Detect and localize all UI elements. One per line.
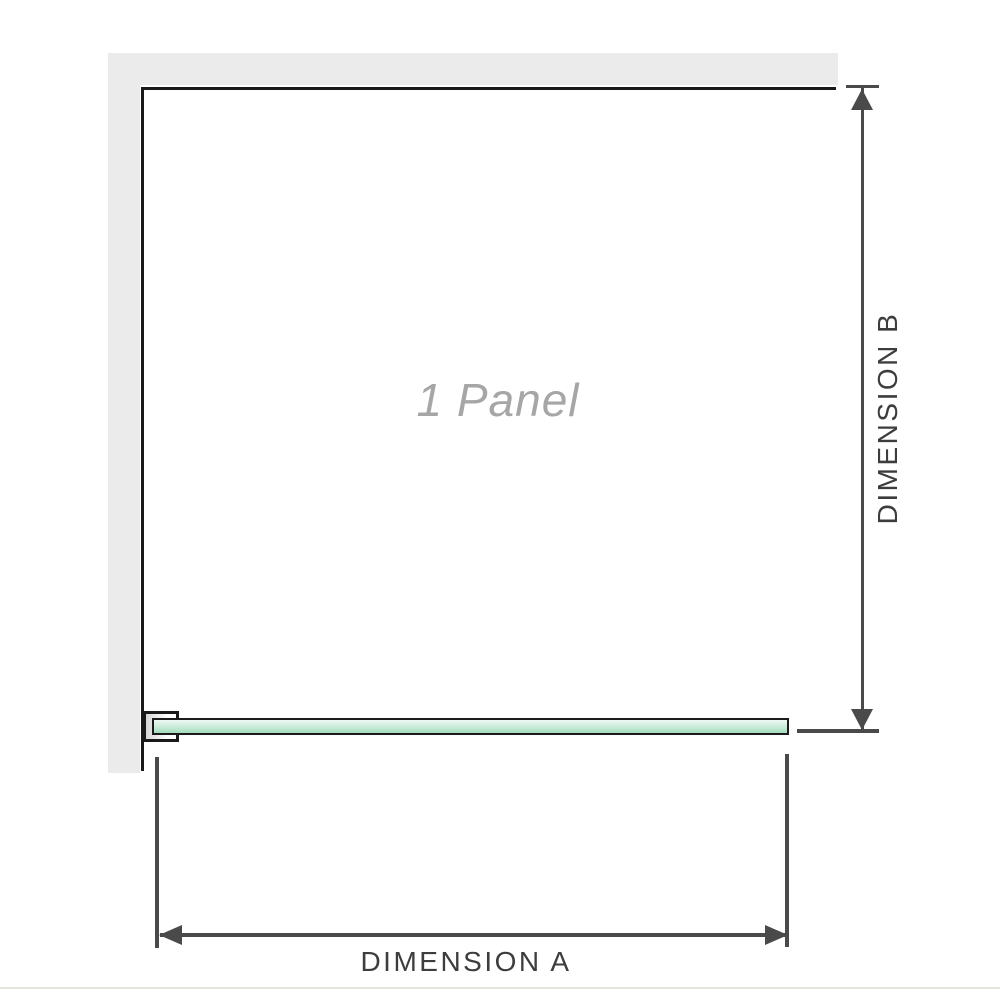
glass-panel-top-view: [152, 718, 789, 735]
bottom-divider: [0, 987, 1000, 989]
dimension-b-line: [861, 88, 864, 730]
dimension-a-label: DIMENSION A: [360, 946, 571, 978]
wall-top: [108, 53, 838, 85]
dimension-a-left-extension: [155, 757, 159, 948]
arrow-left-icon: [159, 925, 182, 945]
arrow-down-icon: [851, 709, 873, 730]
arrow-up-icon: [851, 89, 873, 110]
panel-left-edge: [141, 87, 144, 771]
panel-count-label: 1 Panel: [416, 373, 579, 427]
wall-left: [108, 53, 140, 773]
arrow-right-icon: [765, 925, 788, 945]
dimension-b-label: DIMENSION B: [872, 312, 904, 525]
dimension-a-right-extension: [785, 754, 789, 947]
dimension-diagram: 1 Panel DIMENSION B DIMENSION A: [0, 0, 1000, 1000]
dimension-a-line: [160, 933, 787, 937]
panel-top-edge: [143, 87, 836, 90]
